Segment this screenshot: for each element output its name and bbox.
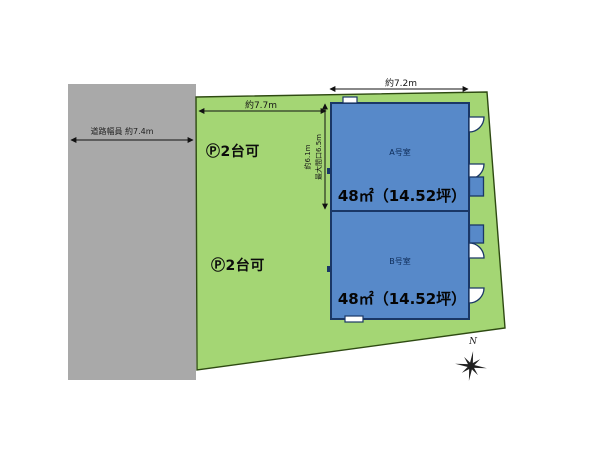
- unit-b-area-label: 48㎡（14.52坪）: [329, 288, 475, 309]
- wall-notch-bottom: [345, 316, 363, 322]
- compass-rose-icon: [453, 349, 489, 383]
- site-plan-canvas: 道路幅員 約7.4m 約7.7m 約7.2m 約6.1m 最大間口6.5m Ⓟ2…: [0, 0, 600, 476]
- dim-label-7-7m: 約7.7m: [221, 98, 301, 111]
- parking-label-lower: Ⓟ2台可: [211, 255, 265, 275]
- unit-b-porch-box: [470, 225, 484, 243]
- dim-label-depth: 約6.1m 最大間口6.5m: [303, 109, 325, 205]
- road-width-label: 道路幅員 約7.4m: [72, 126, 172, 137]
- unit-a-area-label: 48㎡（14.52坪）: [329, 185, 475, 206]
- site-plan-drawing: [0, 0, 600, 476]
- wall-tick-unit-a: [327, 168, 331, 174]
- compass-north-label: N: [463, 337, 483, 347]
- unit-a-name-label: A号室: [331, 147, 469, 158]
- dim-label-7-2m: 約7.2m: [361, 76, 441, 89]
- wall-notch-top: [343, 97, 357, 103]
- unit-b-name-label: B号室: [331, 256, 469, 267]
- dim-label-depth-line2: 最大間口6.5m: [314, 109, 325, 205]
- dim-label-depth-line1: 約6.1m: [303, 109, 314, 205]
- parking-label-upper: Ⓟ2台可: [206, 141, 260, 161]
